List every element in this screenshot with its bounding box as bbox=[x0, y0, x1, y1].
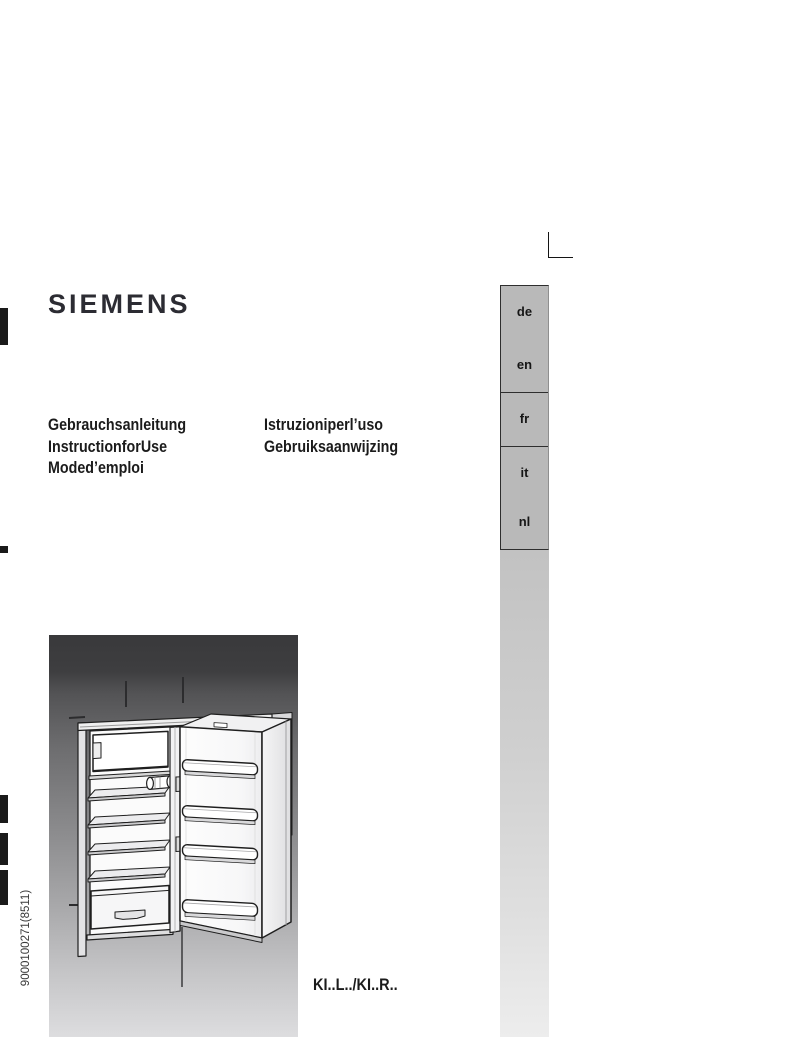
language-tab-en: en bbox=[501, 357, 548, 372]
print-registration-mark bbox=[0, 795, 8, 823]
print-registration-mark bbox=[0, 308, 8, 345]
siemens-logo: SIEMENS bbox=[48, 289, 191, 320]
language-tab-de: de bbox=[501, 304, 548, 319]
print-order-number: 9000100271(8511) bbox=[20, 881, 34, 995]
title-line: Gebrauchsanleitung bbox=[48, 414, 186, 436]
title-line: Gebruiksaanwijzing bbox=[264, 436, 398, 458]
model-code-text: KI..L../KI..R.. bbox=[313, 976, 398, 995]
language-tab-column: de en fr it nl bbox=[500, 285, 549, 550]
tab-column-gradient bbox=[500, 550, 549, 1037]
print-registration-mark bbox=[0, 870, 8, 905]
light-unit bbox=[147, 776, 173, 790]
title-line: InstructionforUse bbox=[48, 436, 167, 458]
language-tab-it: it bbox=[501, 465, 548, 480]
manual-cover-page: SIEMENS Gebrauchsanleitung Instructionfo… bbox=[0, 0, 802, 1037]
model-code: KI..L../KI..R.. bbox=[313, 976, 409, 995]
refrigerator-illustration bbox=[49, 635, 298, 1037]
title-line: Moded’emploi bbox=[48, 457, 144, 479]
language-tab-nl: nl bbox=[501, 514, 548, 529]
print-registration-mark bbox=[0, 833, 8, 865]
crop-mark bbox=[548, 232, 573, 258]
title-block-right: Istruzioniperl’uso Gebruiksaanwijzing bbox=[264, 414, 424, 457]
title-block-left: Gebrauchsanleitung InstructionforUse Mod… bbox=[48, 414, 212, 479]
refrigerator-drawing bbox=[49, 635, 298, 1037]
title-line: Istruzioniperl’uso bbox=[264, 414, 383, 436]
print-registration-mark bbox=[0, 546, 8, 553]
tab-divider bbox=[501, 392, 548, 394]
language-tab-fr: fr bbox=[501, 411, 548, 426]
tab-divider bbox=[501, 446, 548, 448]
